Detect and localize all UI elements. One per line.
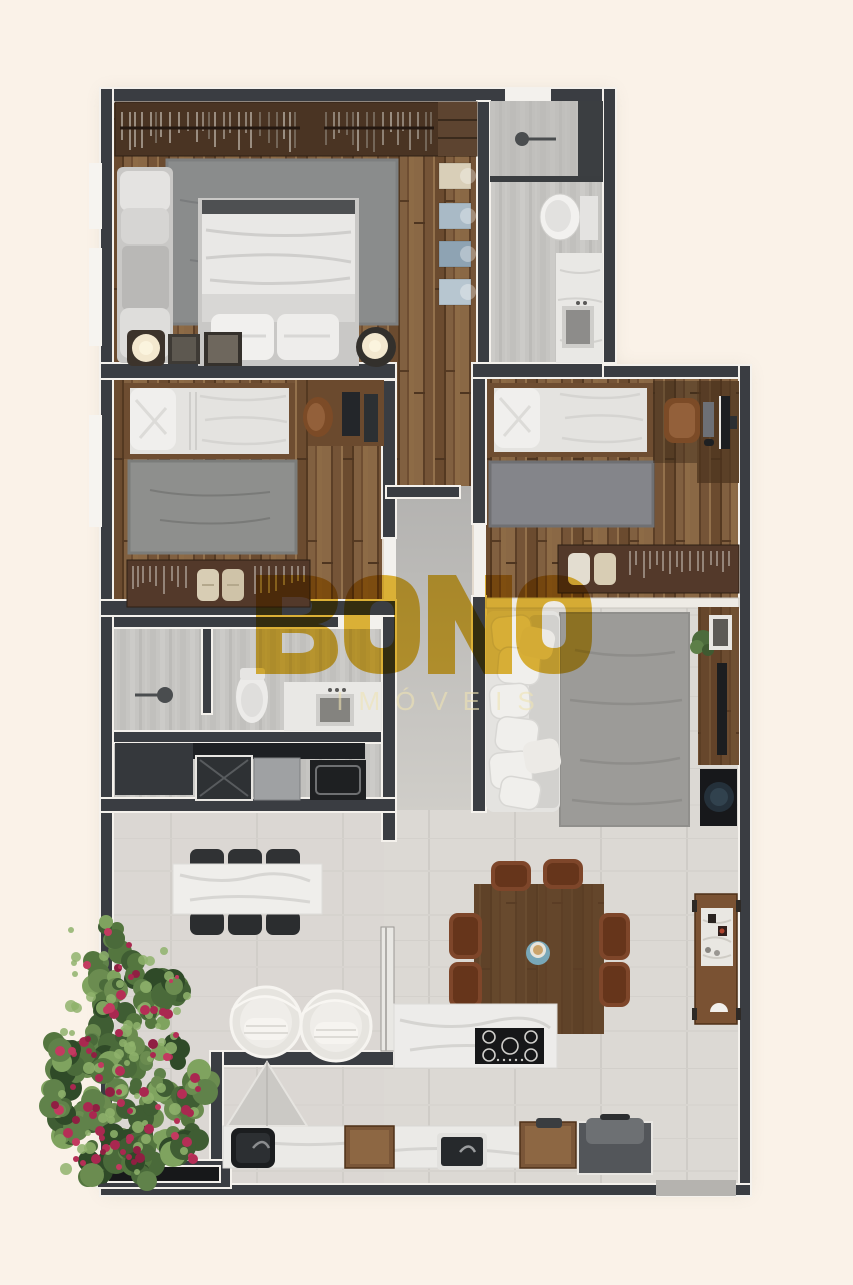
- svg-text:IMÓVEIS: IMÓVEIS: [336, 686, 549, 716]
